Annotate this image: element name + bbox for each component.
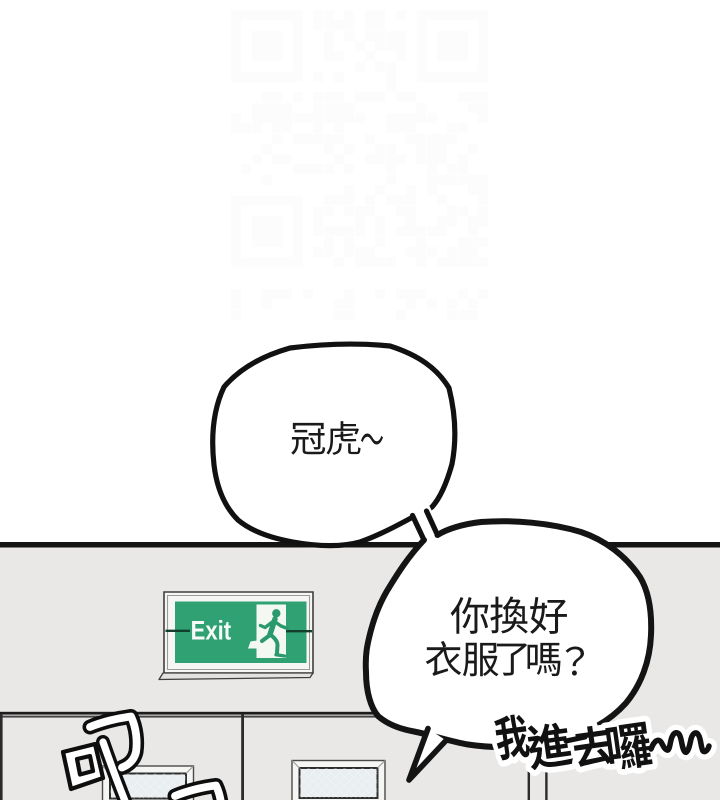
svg-text:Exit: Exit: [191, 616, 232, 646]
